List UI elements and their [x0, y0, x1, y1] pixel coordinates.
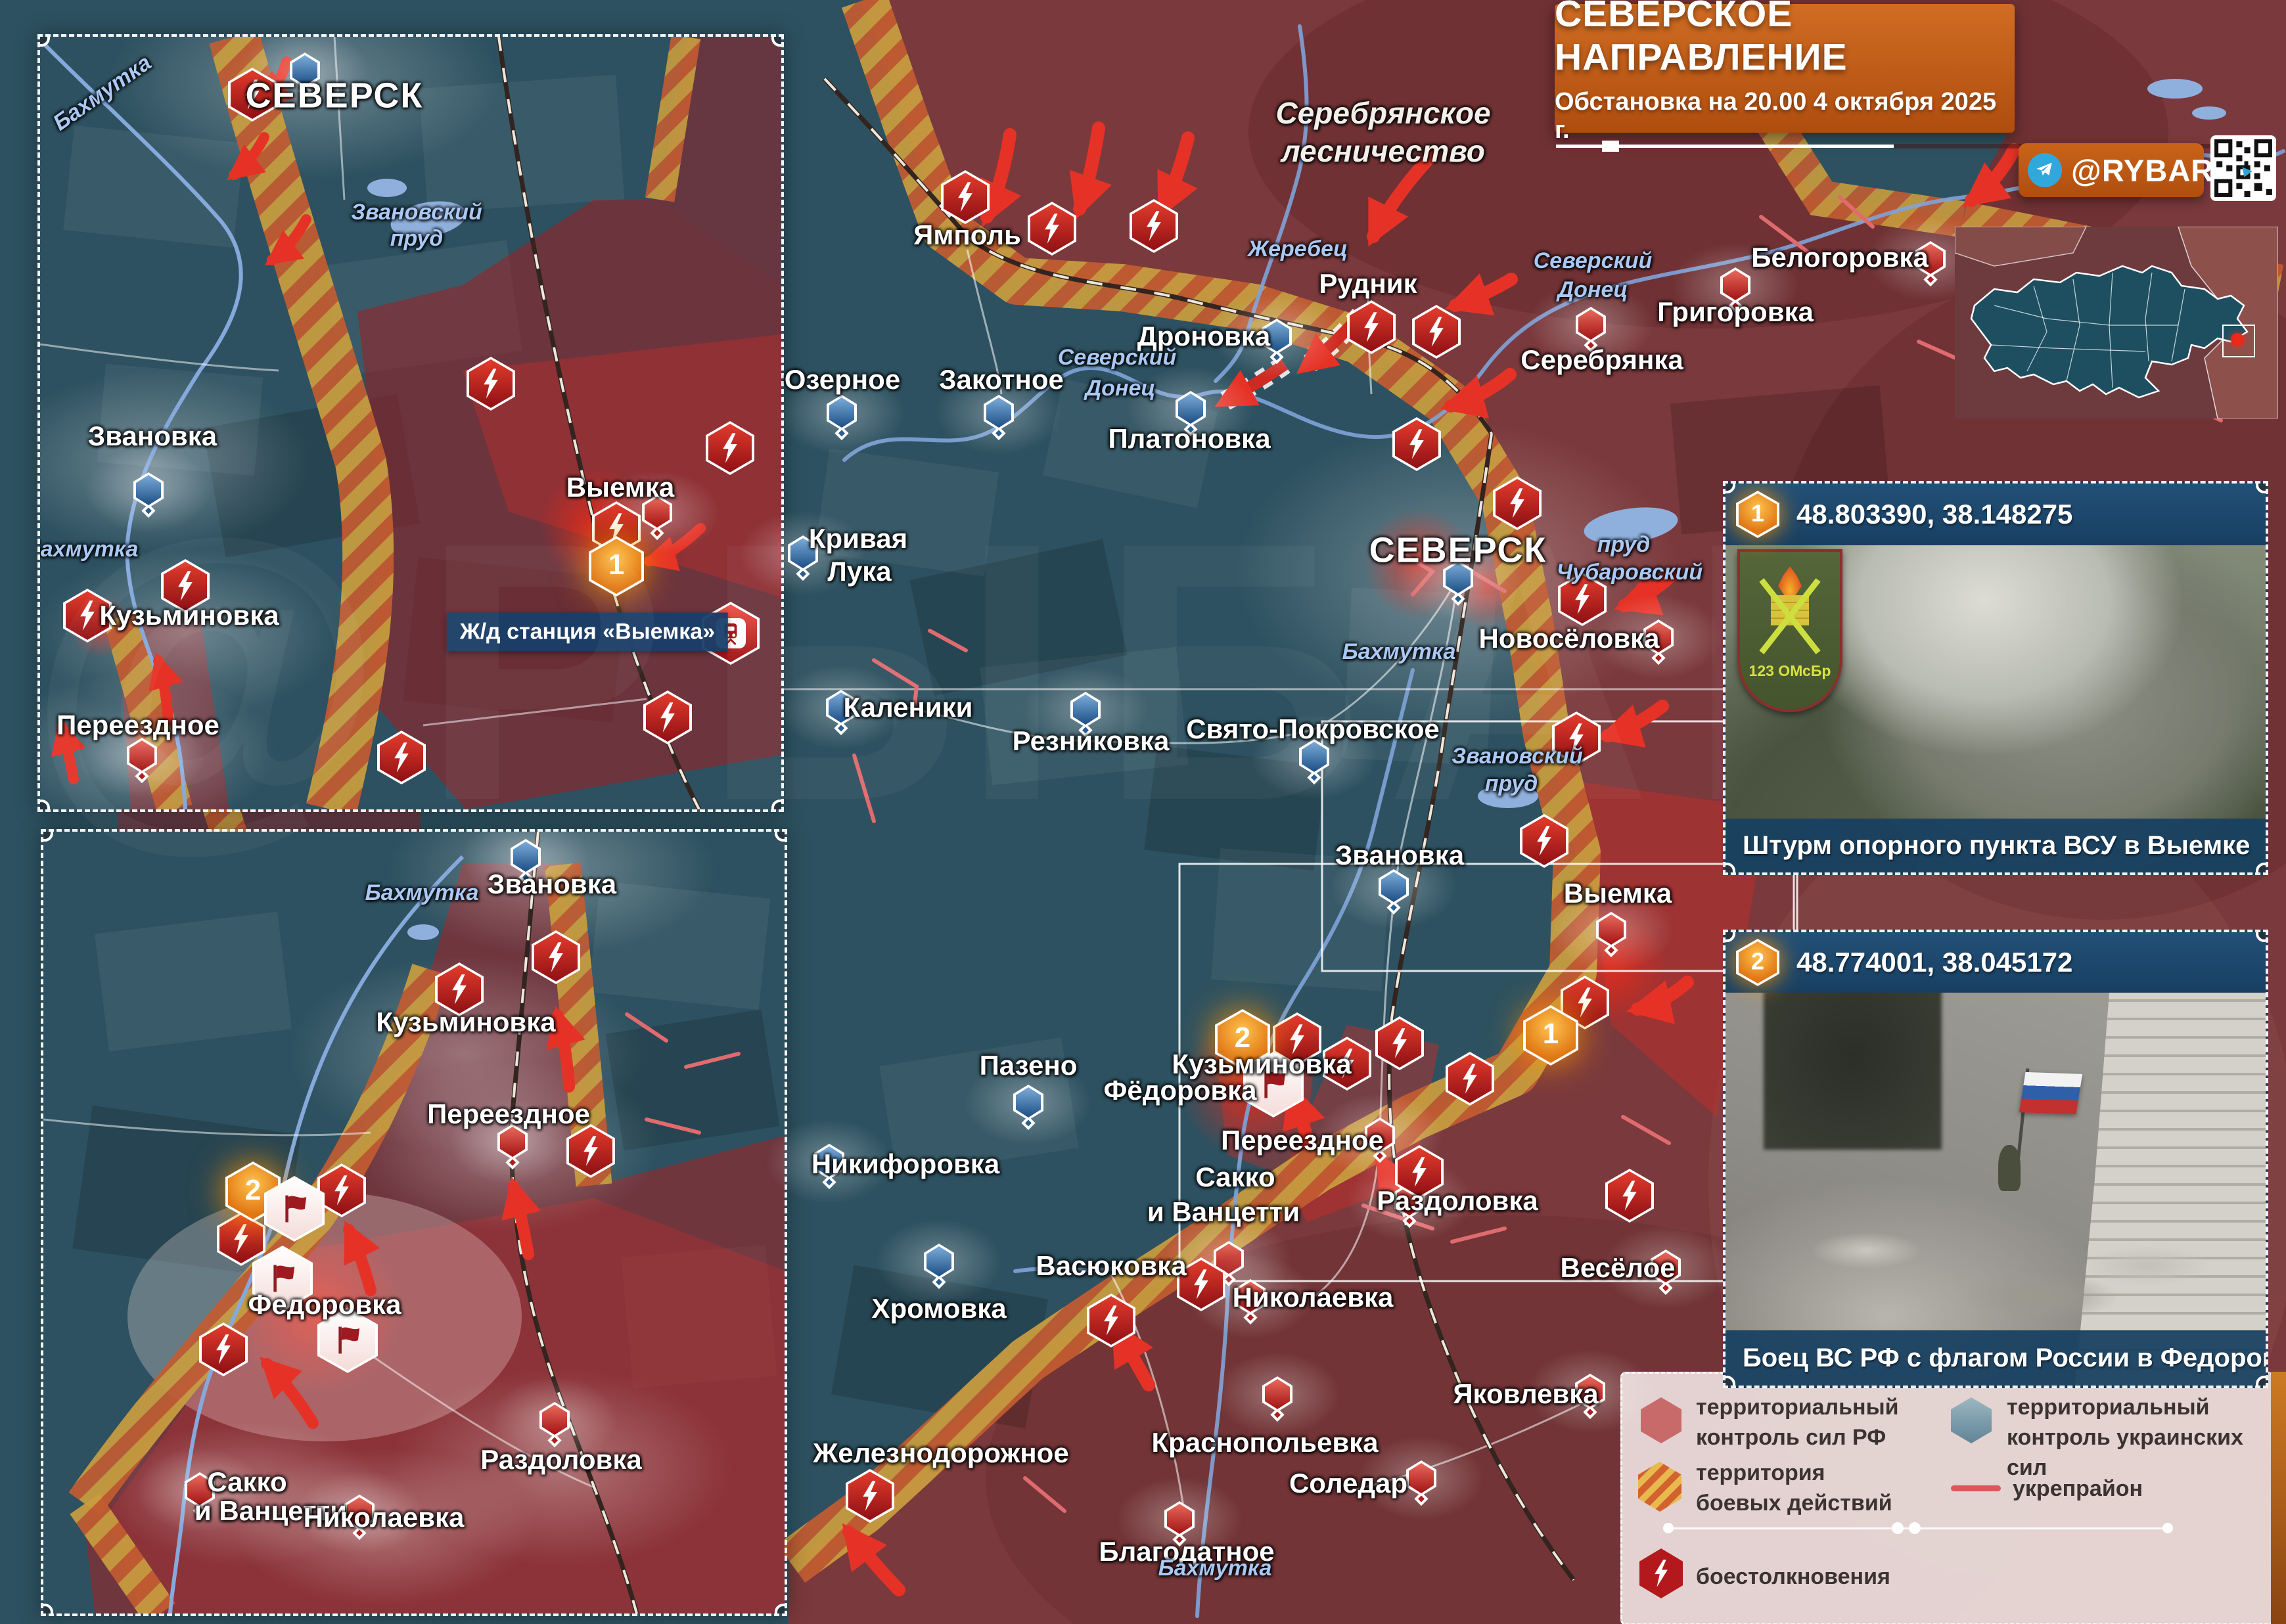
- corner-handle: [2256, 1376, 2268, 1388]
- map-label: пруд: [1485, 773, 1538, 796]
- map-label: Васюковка: [1036, 1252, 1186, 1280]
- battle-icon: [941, 170, 990, 224]
- map-label: Николаевка: [1233, 1283, 1394, 1312]
- map-label: Бахмутка: [1342, 641, 1456, 664]
- photo-panel-2: 2 48.774001, 38.045172 Боец ВС РФ с флаг…: [1723, 930, 2268, 1388]
- battle-icon: [1177, 1257, 1225, 1311]
- map-label: Кузьминовка: [1172, 1050, 1351, 1079]
- battle-icon: [1395, 1145, 1444, 1199]
- map-label: Серебрянское: [1275, 97, 1490, 129]
- map-label: Платоновка: [1108, 424, 1270, 453]
- battle-icon: [1446, 1052, 1494, 1106]
- battle-icon: [1130, 199, 1178, 253]
- photo-panel-1: 123 ОМсБр 1 48.803390, 38.148275 Штурм о…: [1723, 481, 2268, 875]
- map-label: Бахмутка: [1158, 1557, 1272, 1581]
- map-label: Донец: [1086, 377, 1156, 401]
- map-label: Рудник: [1319, 269, 1417, 298]
- map-label: Переездное: [1221, 1126, 1384, 1155]
- flag-marker: [1243, 1052, 1304, 1117]
- panel-2-number-icon: 2: [1736, 939, 1779, 986]
- panel-1-caption-bar: Штурм опорного пункта ВСУ в Выемке: [1726, 819, 2266, 872]
- map-label: Железнодорожное: [813, 1439, 1068, 1468]
- battle-icon: [1028, 202, 1076, 256]
- settlement-marker-ua: [1299, 739, 1329, 775]
- corner-handle: [2256, 863, 2268, 875]
- numbered-marker: 1: [1523, 1005, 1578, 1066]
- map-label: Благодатное: [1099, 1537, 1274, 1566]
- panel-2-caption-bar: Боец ВС РФ с флагом России в Федоровке: [1726, 1330, 2266, 1386]
- settlement-marker-ua: [814, 1144, 844, 1179]
- map-label: Яковлевка: [1453, 1380, 1598, 1409]
- battle-icon: [1347, 300, 1396, 354]
- settlement-marker-rf: [1575, 1374, 1605, 1409]
- settlement-marker-rf: [1915, 241, 1946, 277]
- map-label: Лука: [827, 557, 891, 586]
- map-label: Новосёловка: [1478, 624, 1659, 653]
- settlement-marker-rf: [1406, 1460, 1436, 1496]
- battle-icon: [1375, 1016, 1424, 1070]
- settlement-marker-ua: [984, 395, 1014, 430]
- battle-icon: [1558, 572, 1607, 626]
- map-label: Закотное: [939, 365, 1064, 394]
- map-label: Чубаровский: [1557, 561, 1703, 585]
- photo-flag-fedorovka: [1726, 932, 2266, 1386]
- settlement-marker-ua: [1443, 560, 1473, 596]
- battle-icon: [1323, 1037, 1371, 1091]
- settlement-marker-ua: [924, 1244, 954, 1279]
- map-label: Весёлое: [1561, 1253, 1676, 1282]
- settlement-marker-ua: [1262, 319, 1292, 354]
- unit-badge: 123 ОМсБр: [1737, 549, 1842, 712]
- map-label: Каленики: [843, 693, 972, 722]
- map-label: Пазено: [980, 1051, 1078, 1080]
- settlement-marker-rf: [1262, 1376, 1292, 1412]
- map-label: Раздоловка: [1377, 1186, 1538, 1215]
- map-label: Свято-Покровское: [1186, 715, 1440, 744]
- map-infographic: @РЫБАРЬ 12ЯмпольРудникДроновкаОзерноеЗак…: [0, 0, 2286, 1624]
- map-label: СЕВЕРСК: [1369, 532, 1547, 570]
- map-label: Ямполь: [913, 221, 1021, 250]
- map-label: и Ванцетти: [1147, 1198, 1300, 1227]
- map-label: Сакко: [1195, 1163, 1275, 1192]
- settlement-marker-rf: [1214, 1241, 1244, 1276]
- numbered-marker: 2: [1215, 1009, 1270, 1070]
- settlement-marker-rf: [1365, 1117, 1395, 1153]
- settlement-marker-ua: [1013, 1085, 1043, 1120]
- map-label: пруд: [1597, 533, 1651, 557]
- battle-icon: [1412, 305, 1461, 359]
- settlement-marker-ua: [826, 690, 856, 725]
- map-label: Северский: [1058, 346, 1177, 370]
- map-label: Хромовка: [871, 1294, 1006, 1323]
- unit-badge-label: 123 ОМсБр: [1740, 662, 1840, 680]
- settlement-marker-rf: [1576, 307, 1606, 342]
- map-label: Звановка: [1335, 841, 1464, 870]
- battle-icon: [1520, 814, 1568, 868]
- settlement-marker-ua: [1379, 869, 1409, 905]
- ukraine-minimap: [1955, 227, 2278, 418]
- settlement-marker-rf: [1394, 1183, 1425, 1218]
- battle-icon: [1561, 976, 1609, 1029]
- settlement-marker-rf: [1164, 1501, 1195, 1537]
- map-label: Дроновка: [1137, 322, 1270, 351]
- battle-icon: [846, 1469, 894, 1523]
- map-label: Звановский: [1452, 745, 1583, 769]
- map-label: Озерное: [785, 365, 900, 394]
- panel-1-coordinates: 48.803390, 38.148275: [1779, 499, 2072, 530]
- settlement-marker-ua: [1070, 692, 1101, 727]
- map-label: Северский: [1534, 250, 1653, 273]
- settlement-marker-ua: [788, 535, 818, 571]
- panel-2-caption: Боец ВС РФ с флагом России в Федоровке: [1726, 1343, 2268, 1373]
- map-label: лесничество: [1281, 135, 1485, 167]
- map-label: Выемка: [1564, 879, 1672, 908]
- battle-icon: [1552, 711, 1601, 765]
- map-label: Григоровка: [1657, 298, 1814, 327]
- map-label: Кривая: [809, 524, 907, 553]
- map-label: Серебрянка: [1520, 346, 1683, 374]
- map-label: Резниковка: [1013, 727, 1170, 756]
- panel-2-header: 2 48.774001, 38.045172: [1726, 932, 2266, 993]
- settlement-marker-rf: [1596, 912, 1626, 947]
- map-label: Жеребец: [1248, 238, 1348, 261]
- battle-icon: [1493, 476, 1542, 530]
- battle-icon: [1392, 417, 1441, 471]
- map-label: Белогоровка: [1751, 243, 1928, 272]
- panel-2-coordinates: 48.774001, 38.045172: [1779, 947, 2072, 978]
- panel-1-header: 1 48.803390, 38.148275: [1726, 484, 2266, 545]
- map-label: Краснопольевка: [1151, 1428, 1378, 1457]
- settlement-marker-rf: [1651, 1250, 1681, 1285]
- panel-1-number-icon: 1: [1736, 491, 1779, 538]
- settlement-marker-ua: [1176, 391, 1206, 426]
- map-label: Фёдоровка: [1103, 1076, 1256, 1105]
- battle-icon: [1273, 1012, 1321, 1066]
- map-label: Донец: [1558, 279, 1628, 302]
- battle-icon: [1605, 1169, 1654, 1223]
- map-label: Никифоровка: [812, 1150, 999, 1179]
- battle-icon: [1087, 1294, 1135, 1347]
- settlement-marker-rf: [1643, 620, 1674, 655]
- panel-1-caption: Штурм опорного пункта ВСУ в Выемке: [1726, 831, 2250, 861]
- settlement-marker-rf: [1720, 267, 1750, 303]
- settlement-marker-ua: [827, 395, 857, 430]
- map-label: Соледар: [1289, 1469, 1407, 1498]
- settlement-marker-rf: [1235, 1279, 1266, 1315]
